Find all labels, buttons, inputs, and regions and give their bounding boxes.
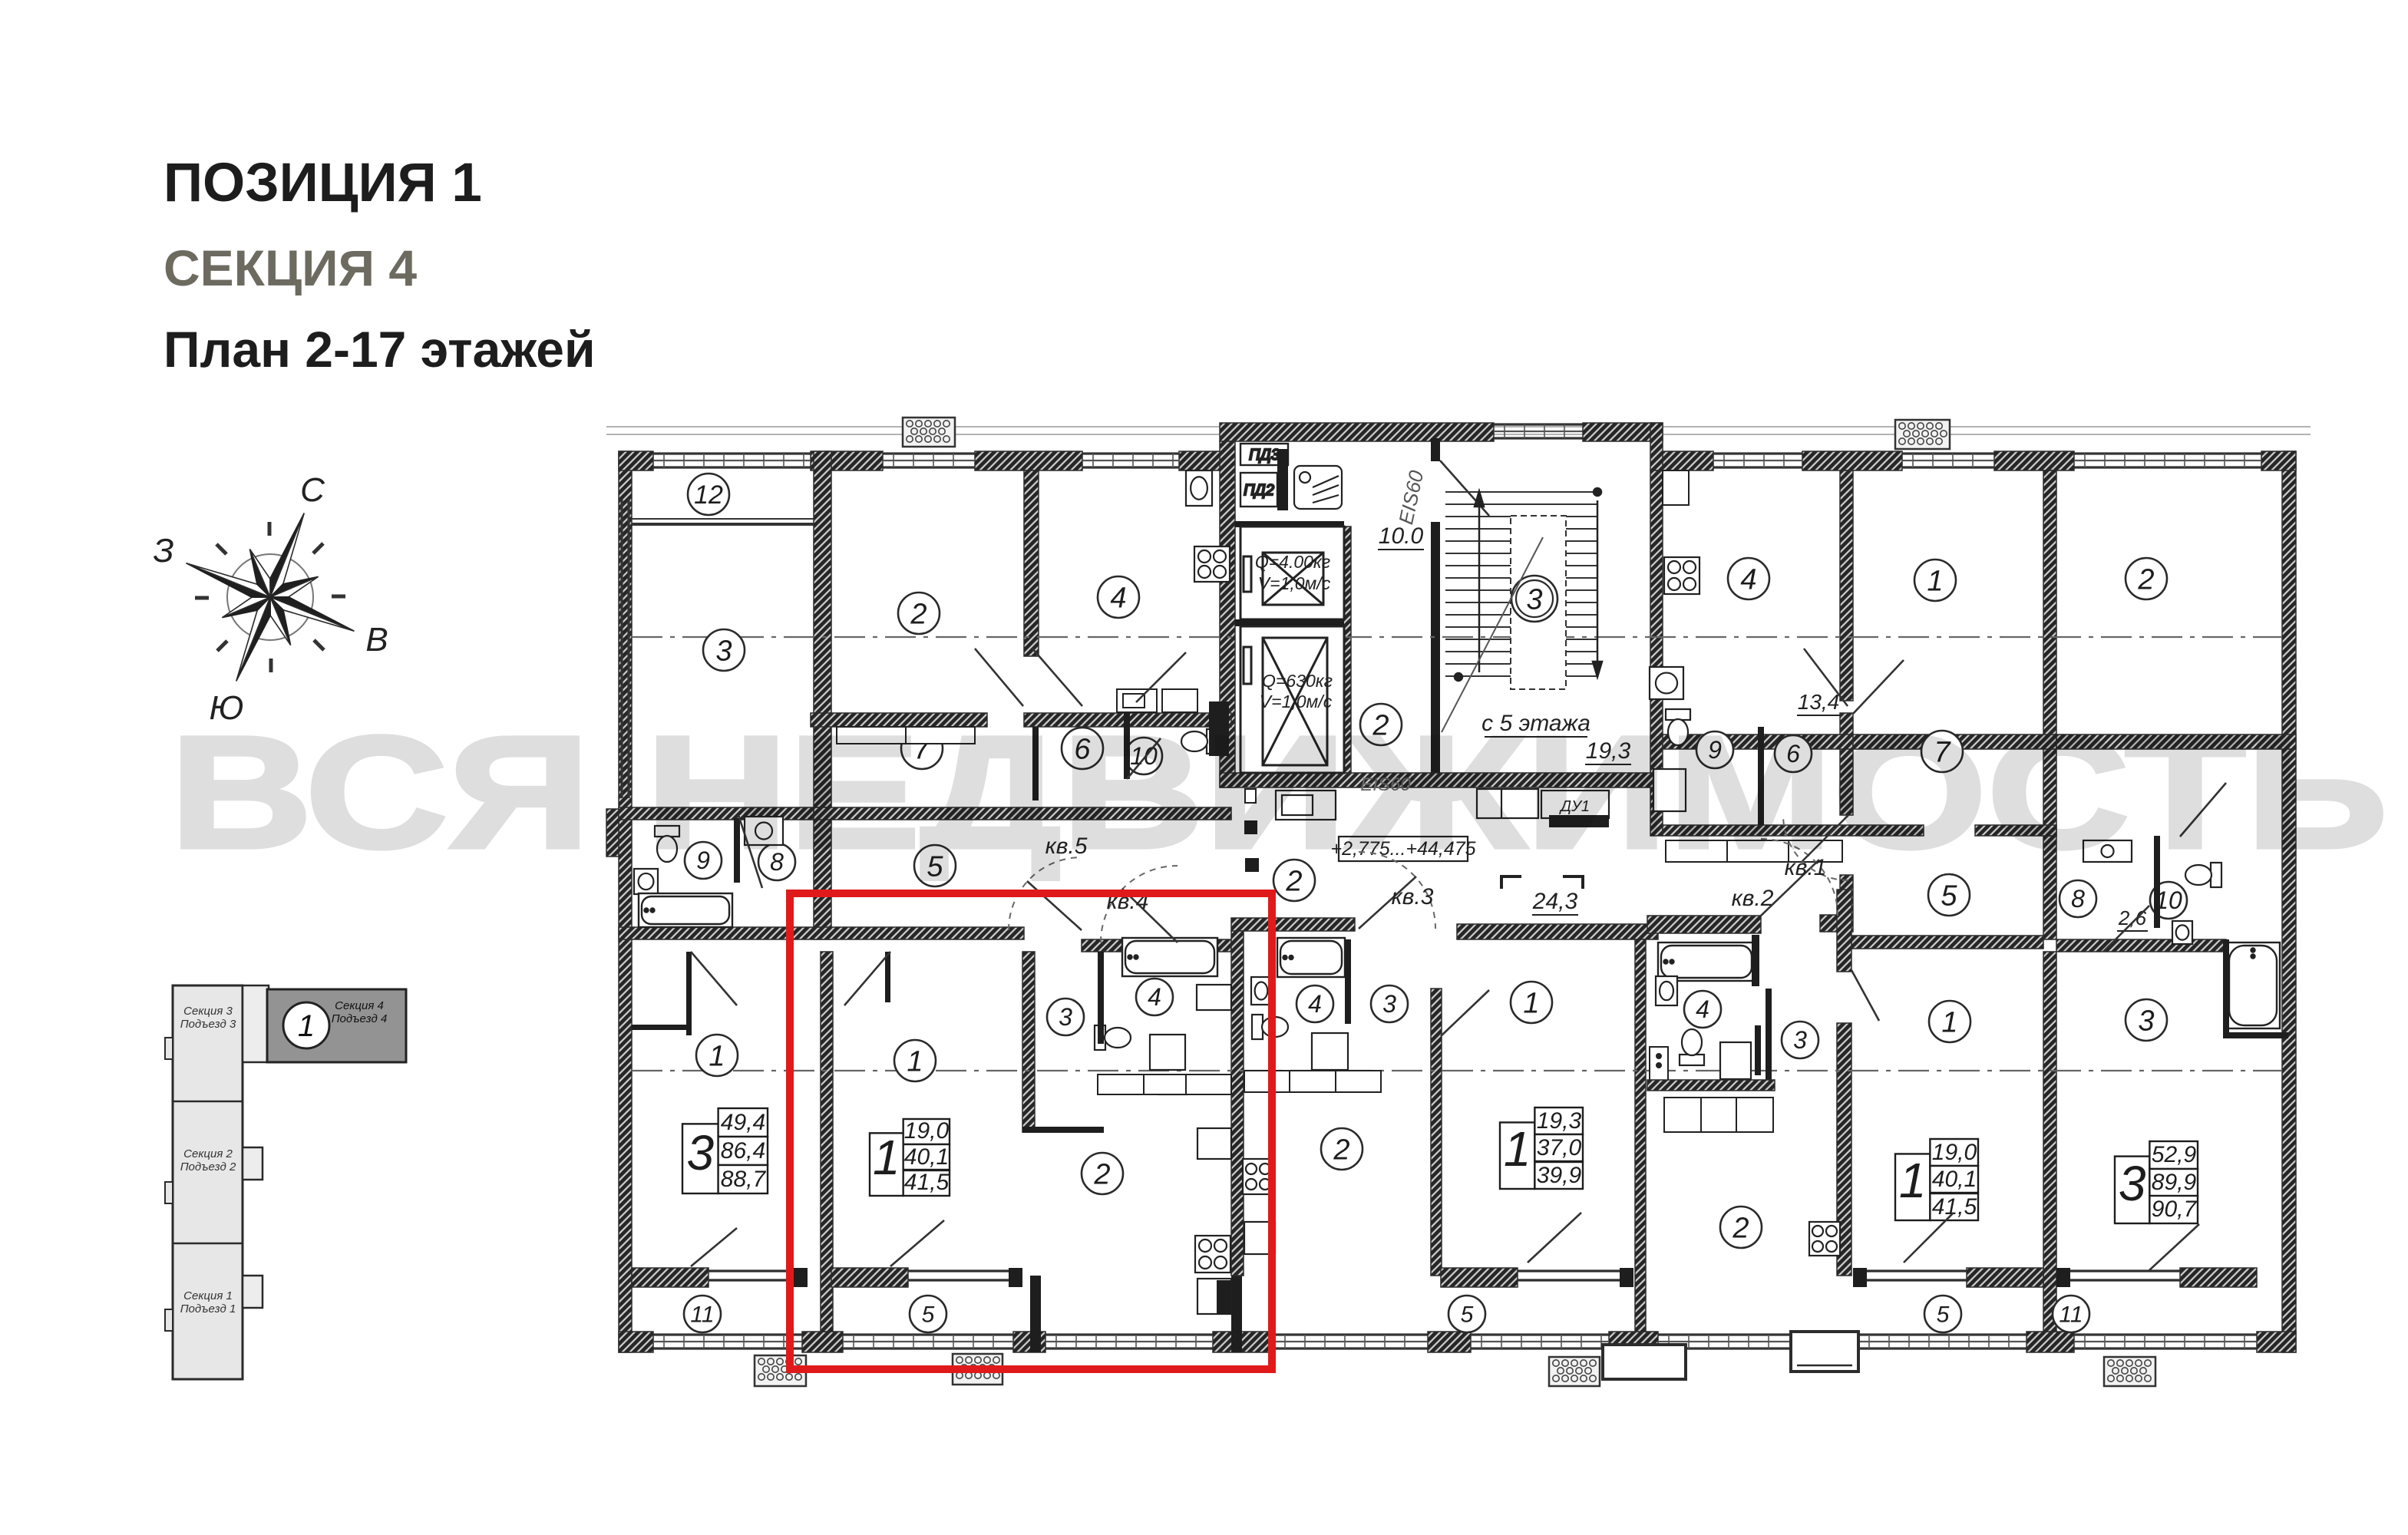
svg-text:37,0: 37,0 <box>1537 1135 1582 1160</box>
svg-text:40,1: 40,1 <box>904 1144 949 1170</box>
svg-text:3: 3 <box>715 635 732 667</box>
svg-text:5: 5 <box>1461 1302 1474 1328</box>
svg-text:4: 4 <box>1110 582 1126 614</box>
svg-text:8: 8 <box>2071 885 2085 913</box>
svg-text:3: 3 <box>687 1125 715 1180</box>
svg-text:ПД2: ПД2 <box>1244 482 1274 499</box>
svg-text:Секция 1: Секция 1 <box>183 1289 233 1302</box>
svg-text:11: 11 <box>2059 1302 2083 1328</box>
svg-text:40,1: 40,1 <box>1932 1167 1977 1192</box>
svg-text:89,9: 89,9 <box>2152 1170 2197 1195</box>
svg-text:План 2-17 этажей: План 2-17 этажей <box>164 321 596 378</box>
svg-text:4: 4 <box>1308 990 1322 1018</box>
svg-text:Подъезд 2: Подъезд 2 <box>180 1160 236 1174</box>
svg-text:41,5: 41,5 <box>1932 1194 1977 1220</box>
svg-text:2: 2 <box>910 598 927 630</box>
svg-text:2: 2 <box>1333 1134 1349 1166</box>
svg-text:1: 1 <box>1504 1121 1531 1177</box>
svg-text:2: 2 <box>1732 1212 1749 1244</box>
svg-text:10.0: 10.0 <box>1379 523 1424 549</box>
svg-text:кв.2: кв.2 <box>1732 886 1774 911</box>
svg-text:19,0: 19,0 <box>1932 1140 1977 1165</box>
svg-text:11: 11 <box>690 1302 714 1328</box>
svg-text:Подъезд 3: Подъезд 3 <box>180 1018 236 1031</box>
svg-text:кв.3: кв.3 <box>1392 884 1434 909</box>
svg-text:Секция 3: Секция 3 <box>183 1005 233 1018</box>
svg-text:ВСЯ НЕДВИЖИМОСТЬ: ВСЯ НЕДВИЖИМОСТЬ <box>170 704 2388 882</box>
svg-text:19,3: 19,3 <box>1537 1108 1582 1134</box>
svg-text:ПОЗИЦИЯ 1: ПОЗИЦИЯ 1 <box>164 153 482 213</box>
svg-text:Секция 4: Секция 4 <box>335 999 384 1012</box>
svg-text:3: 3 <box>1793 1026 1807 1054</box>
svg-text:5: 5 <box>1937 1302 1950 1328</box>
svg-text:1: 1 <box>907 1045 923 1078</box>
svg-text:ПД3: ПД3 <box>1249 447 1280 464</box>
svg-text:88,7: 88,7 <box>721 1167 767 1192</box>
svg-text:52,9: 52,9 <box>2152 1142 2197 1167</box>
svg-text:1: 1 <box>1941 1006 1957 1038</box>
svg-text:3: 3 <box>2138 1005 2154 1037</box>
svg-text:З: З <box>153 532 173 569</box>
svg-text:Q=630кг: Q=630кг <box>1262 671 1333 691</box>
svg-text:Подъезд 4: Подъезд 4 <box>332 1012 388 1025</box>
svg-text:2,6: 2,6 <box>2118 906 2147 929</box>
svg-text:12: 12 <box>694 480 723 510</box>
svg-text:19,0: 19,0 <box>904 1118 950 1144</box>
svg-text:Секция 2: Секция 2 <box>183 1147 233 1160</box>
svg-text:С: С <box>300 471 325 509</box>
svg-text:2: 2 <box>2137 563 2154 596</box>
svg-text:5: 5 <box>922 1302 935 1328</box>
svg-text:39,9: 39,9 <box>1537 1163 1582 1188</box>
svg-text:3: 3 <box>1059 1003 1072 1031</box>
svg-text:Подъезд 1: Подъезд 1 <box>180 1302 236 1315</box>
svg-text:3: 3 <box>1382 990 1396 1018</box>
svg-text:4: 4 <box>1696 995 1709 1023</box>
svg-text:41,5: 41,5 <box>904 1170 950 1195</box>
svg-text:1: 1 <box>709 1040 725 1072</box>
svg-text:4: 4 <box>1740 563 1756 596</box>
svg-text:Q=4.00кг: Q=4.00кг <box>1255 552 1330 572</box>
svg-text:90,7: 90,7 <box>2152 1197 2198 1222</box>
svg-text:86,4: 86,4 <box>721 1138 765 1164</box>
svg-text:2: 2 <box>1093 1158 1110 1190</box>
svg-text:1: 1 <box>298 1009 315 1043</box>
svg-text:1: 1 <box>873 1130 900 1185</box>
svg-text:3: 3 <box>1526 583 1542 616</box>
svg-text:1: 1 <box>1899 1153 1927 1208</box>
svg-text:1: 1 <box>1927 565 1943 597</box>
svg-text:1: 1 <box>1523 987 1539 1019</box>
svg-text:В: В <box>365 621 388 659</box>
svg-text:49,4: 49,4 <box>721 1110 765 1135</box>
svg-text:3: 3 <box>2119 1156 2146 1211</box>
svg-text:V=1,0м/с: V=1,0м/с <box>1258 573 1331 593</box>
svg-text:СЕКЦИЯ 4: СЕКЦИЯ 4 <box>164 239 417 296</box>
svg-text:5: 5 <box>1941 880 1957 912</box>
svg-text:24,3: 24,3 <box>1532 889 1578 914</box>
svg-text:4: 4 <box>1148 983 1161 1011</box>
